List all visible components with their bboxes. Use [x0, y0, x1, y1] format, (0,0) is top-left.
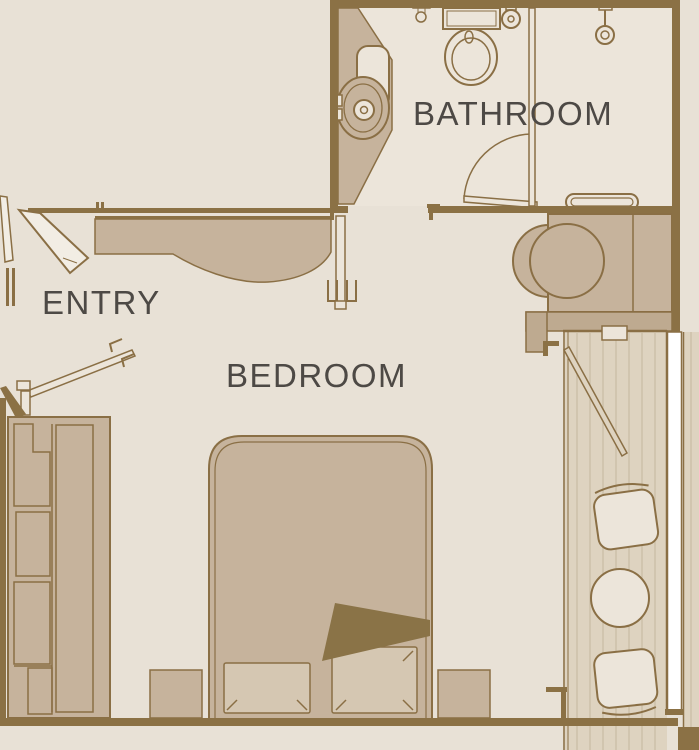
wardrobe-door-icon	[0, 339, 135, 420]
balcony-table-icon	[591, 569, 649, 627]
nightstand-left-icon	[150, 670, 202, 718]
toilet-icon	[443, 8, 500, 85]
entry-label: ENTRY	[42, 286, 161, 319]
nightstand-right-icon	[438, 670, 490, 718]
pillow-icon	[224, 663, 310, 713]
pillow-icon	[332, 647, 417, 713]
balcony-railing	[665, 332, 684, 715]
bedroom-label: BEDROOM	[226, 359, 407, 392]
bathroom-label: BATHROOM	[413, 97, 613, 130]
entry-bulkhead	[95, 219, 331, 282]
desk-icon	[530, 214, 672, 312]
floor-plan: BATHROOM ENTRY BEDROOM	[0, 0, 699, 750]
entry-wall	[28, 202, 332, 219]
wardrobe-icon	[8, 417, 110, 718]
bed-icon	[209, 436, 432, 721]
bedroom-door-icon	[328, 204, 440, 309]
